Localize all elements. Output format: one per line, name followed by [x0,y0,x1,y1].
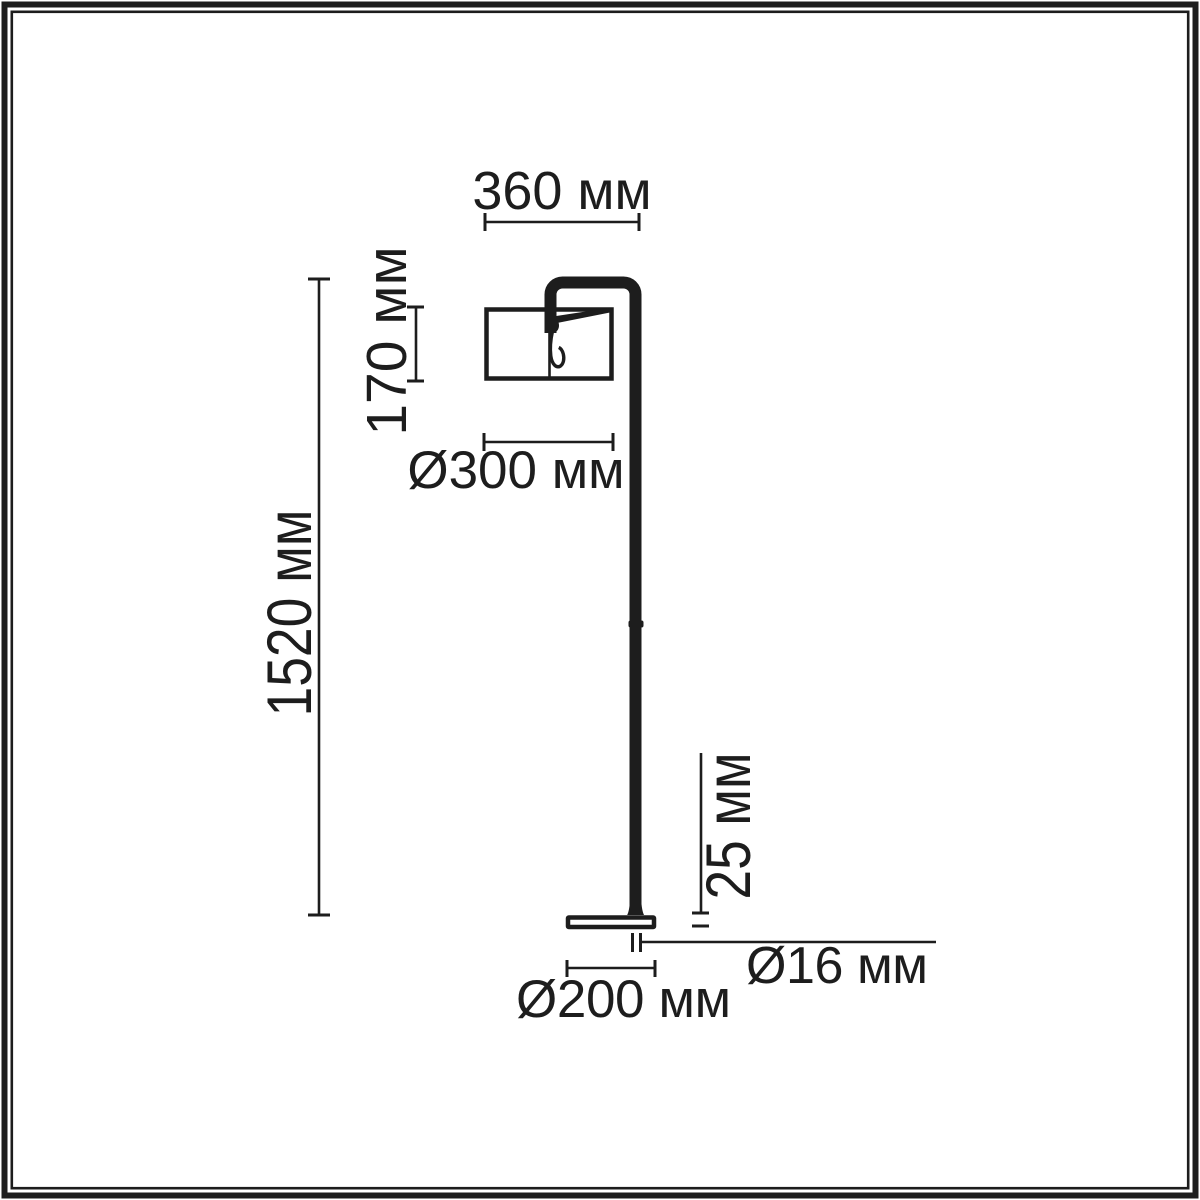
svg-text:1520 мм: 1520 мм [255,510,325,717]
svg-text:360 мм: 360 мм [472,161,651,221]
svg-text:Ø300 мм: Ø300 мм [407,441,624,500]
svg-text:Ø200 мм: Ø200 мм [516,970,731,1029]
svg-text:170 мм: 170 мм [355,246,419,435]
svg-text:25 мм: 25 мм [694,753,764,900]
svg-text:Ø16 мм: Ø16 мм [746,937,928,995]
